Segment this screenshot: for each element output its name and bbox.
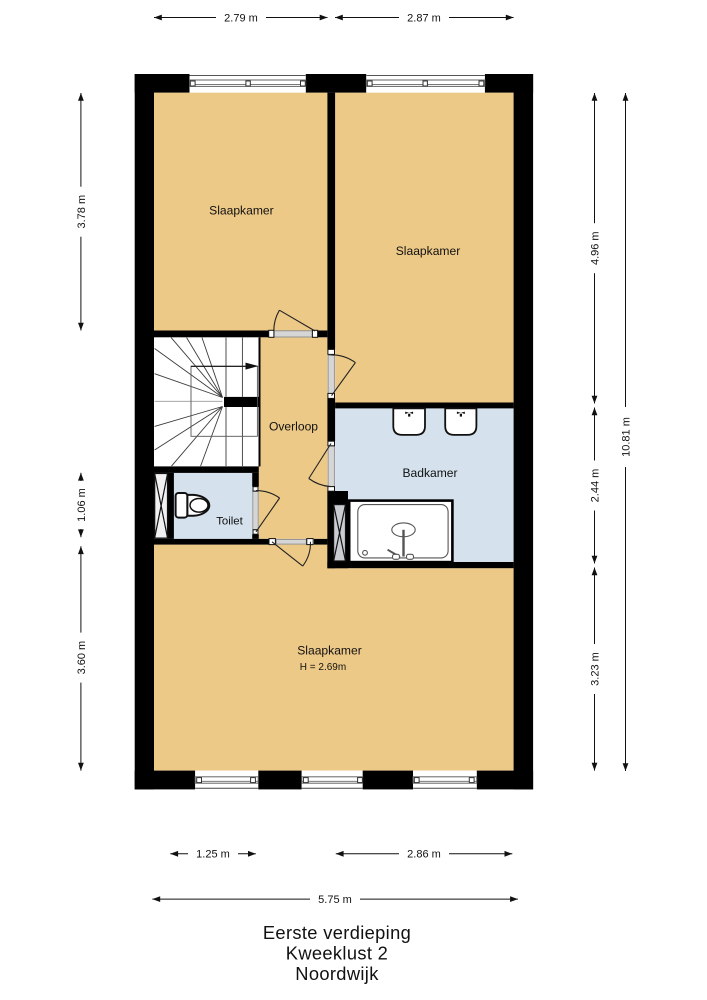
svg-text:1.06 m: 1.06 m: [76, 488, 88, 522]
svg-text:3.60 m: 3.60 m: [76, 641, 88, 675]
svg-text:10.81 m: 10.81 m: [621, 417, 633, 457]
svg-text:2.86 m: 2.86 m: [407, 849, 441, 861]
svg-text:2.44 m: 2.44 m: [590, 469, 602, 503]
svg-text:H = 2.69m: H = 2.69m: [300, 662, 346, 673]
svg-text:Toilet: Toilet: [216, 515, 243, 527]
svg-text:3.78 m: 3.78 m: [76, 195, 88, 229]
svg-text:Noordwijk: Noordwijk: [295, 963, 379, 984]
svg-text:1.25 m: 1.25 m: [196, 849, 230, 861]
svg-text:2.79 m: 2.79 m: [224, 13, 258, 25]
svg-text:Kweeklust 2: Kweeklust 2: [286, 943, 388, 964]
svg-text:Eerste verdieping: Eerste verdieping: [263, 922, 411, 943]
svg-text:Badkamer: Badkamer: [402, 466, 457, 480]
svg-text:2.87 m: 2.87 m: [407, 13, 441, 25]
svg-text:5.75 m: 5.75 m: [318, 894, 352, 906]
svg-text:Slaapkamer: Slaapkamer: [297, 644, 362, 658]
svg-text:Overloop: Overloop: [269, 420, 318, 434]
svg-text:3.23 m: 3.23 m: [590, 652, 602, 686]
svg-text:4.96 m: 4.96 m: [590, 231, 602, 265]
svg-text:Slaapkamer: Slaapkamer: [209, 204, 274, 218]
svg-text:Slaapkamer: Slaapkamer: [396, 244, 461, 258]
